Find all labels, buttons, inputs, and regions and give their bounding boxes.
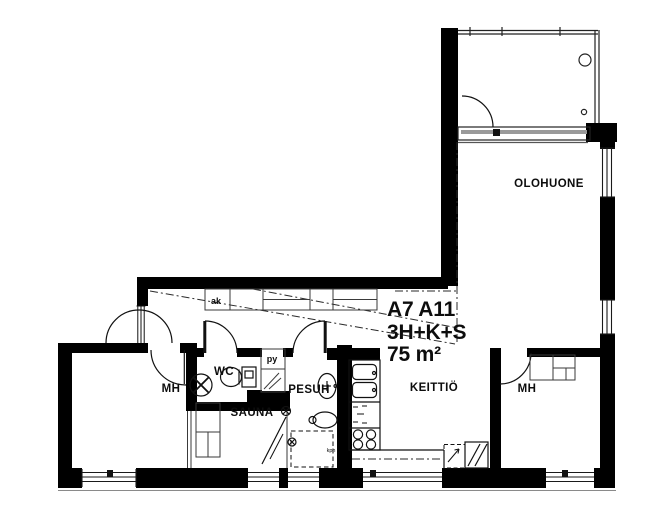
wall-wc-top-b [237, 348, 262, 357]
bedroom-right-closet [530, 355, 575, 380]
wall-bedroom-left-top [58, 343, 148, 353]
kitchen-fridge-reservation [444, 445, 465, 469]
balcony-drain-small [581, 109, 586, 114]
kitchen-counter-left [349, 360, 380, 450]
closet-label-py: py [267, 354, 278, 364]
wall-bottom-2 [136, 468, 248, 488]
sauna-door-diagonal-2 [270, 434, 283, 459]
bedroom-right-door-arc [500, 353, 531, 384]
wall-stairwell-balcony-left [441, 28, 458, 286]
wall-bottom-4 [319, 468, 363, 488]
room-label-sauna: SAUNA [231, 407, 274, 419]
wall-bedroom-right-top [527, 348, 600, 357]
washroom-toilet [309, 412, 337, 428]
wall-bottom-5 [442, 468, 546, 488]
wall-kitchen-stub [327, 348, 380, 360]
room-label-washroom: PESUH [288, 384, 330, 396]
window-living-upper [600, 148, 615, 197]
entry-door-leaf [137, 306, 146, 343]
unit-id-label: A7 A11 [387, 298, 456, 321]
bedroom-left-door-arc [151, 350, 186, 385]
balcony-glass-door-glazing [461, 130, 587, 134]
kitchen-dishwasher-marks [353, 406, 367, 423]
wc-door-leaf [203, 321, 206, 353]
room-label-bedroom-right: MH [518, 383, 537, 395]
wall-wc-tank-side [247, 390, 262, 402]
wall-right-b [600, 197, 615, 300]
wall-right-c [600, 334, 615, 488]
window-sauna [248, 473, 279, 482]
entry-door-arc [106, 310, 172, 343]
window-living-lower [600, 300, 615, 334]
wall-balcony-corner-block [586, 123, 617, 142]
kitchen-stove-burners [353, 430, 375, 449]
window-washroom [288, 473, 319, 482]
room-label-kitchen: KEITTIÖ [410, 381, 458, 394]
balcony-drain-circle [579, 54, 591, 66]
room-label-living: OLOHUONE [514, 178, 584, 190]
wall-wc-top-a [186, 348, 204, 357]
room-label-wc: WC [214, 366, 234, 378]
wc-door-arc [205, 321, 237, 353]
washroom-floor-drains [282, 407, 297, 447]
wall-kitchen-east [490, 348, 501, 468]
washroom-door-leaf [324, 321, 327, 353]
sauna-door-diagonal [262, 417, 286, 464]
wall-hall-top [137, 277, 448, 289]
unit-area-label: 75 m² [387, 343, 441, 366]
window-bedroom-right [546, 470, 594, 482]
washroom-door-arc [293, 321, 325, 353]
window-bedroom-left [82, 469, 136, 487]
kitchen-fridge [465, 442, 488, 468]
unit-type-label: 3H+K+S [387, 321, 467, 344]
hall-wardrobe-row [205, 289, 377, 310]
room-label-bedroom-left: MH [162, 383, 181, 395]
wall-bottom-3 [279, 468, 288, 488]
balcony-door-arc [462, 96, 493, 127]
washroom-note-label: kph [327, 448, 336, 454]
floor-plan-page: OLOHUONE KEITTIÖ MH MH WC PESUH SAUNA ak… [0, 0, 650, 519]
labels: OLOHUONE KEITTIÖ MH MH WC PESUH SAUNA ak… [162, 178, 584, 454]
wall-bottom-6 [594, 468, 615, 488]
window-kitchen [363, 470, 442, 482]
floor-plan-svg: OLOHUONE KEITTIÖ MH MH WC PESUH SAUNA ak… [0, 0, 650, 519]
wall-left [58, 343, 72, 488]
balcony [458, 27, 599, 143]
closet-label-ak: ak [211, 296, 222, 306]
balcony-door-handle [493, 129, 500, 136]
